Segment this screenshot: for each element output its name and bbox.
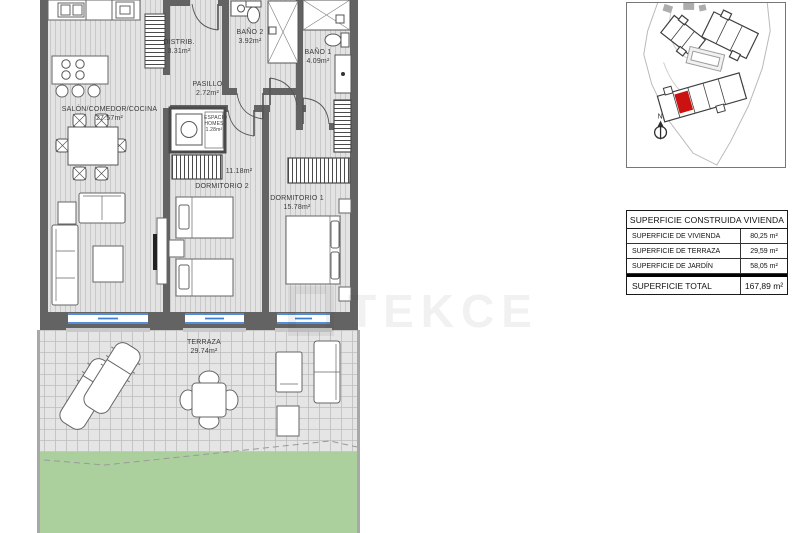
area-table: SUPERFICIE CONSTRUIDA VIVIENDA SUPERFICI… (626, 210, 788, 295)
room-label-espacio: ESPACIO HOMES 1.28m² (204, 115, 224, 133)
table-total-row: SUPERFICIE TOTAL 167,89 m² (627, 277, 787, 294)
windows (66, 313, 332, 332)
floor-plan-page: SALÓN/COMEDOR/COCINA 27.57m² DISTRIB. 3.… (0, 0, 800, 533)
room-area-dorm2: 11.18m² (222, 167, 256, 176)
terrace-left-rail (37, 330, 40, 533)
window-dorm1 (275, 313, 332, 332)
garden-area (40, 452, 358, 533)
room-label-dorm1: DORMITORIO 1 15.78m² (266, 194, 328, 213)
table-row: SUPERFICIE DE JARDÍN 58,05 m² (627, 259, 787, 274)
room-label-pasillo: PASILLO 2.72m² (180, 80, 235, 99)
room-label-distrib: DISTRIB. 3.31m² (148, 38, 210, 57)
area-table-header: SUPERFICIE CONSTRUIDA VIVIENDA (627, 211, 787, 229)
room-label-salon: SALÓN/COMEDOR/COCINA 27.57m² (52, 105, 167, 124)
window-dorm2 (183, 313, 246, 332)
site-map: N (626, 2, 786, 168)
room-label-bano2: BAÑO 2 3.92m² (225, 28, 275, 47)
window-living (66, 313, 150, 332)
table-row: SUPERFICIE DE VIVIENDA 80,25 m² (627, 229, 787, 244)
table-row: SUPERFICIE DE TERRAZA 29,59 m² (627, 244, 787, 259)
site-structure-central (686, 46, 725, 71)
site-map-drawing: N (627, 3, 785, 167)
site-misc-structures (662, 3, 706, 13)
north-label: N (658, 114, 663, 121)
terrace-right-rail (357, 330, 360, 533)
room-label-dorm2: DORMITORIO 2 (183, 182, 261, 191)
room-label-bano1: BAÑO 1 4.09m² (294, 48, 342, 67)
room-label-terraza: TERRAZA 29.74m² (175, 338, 233, 357)
